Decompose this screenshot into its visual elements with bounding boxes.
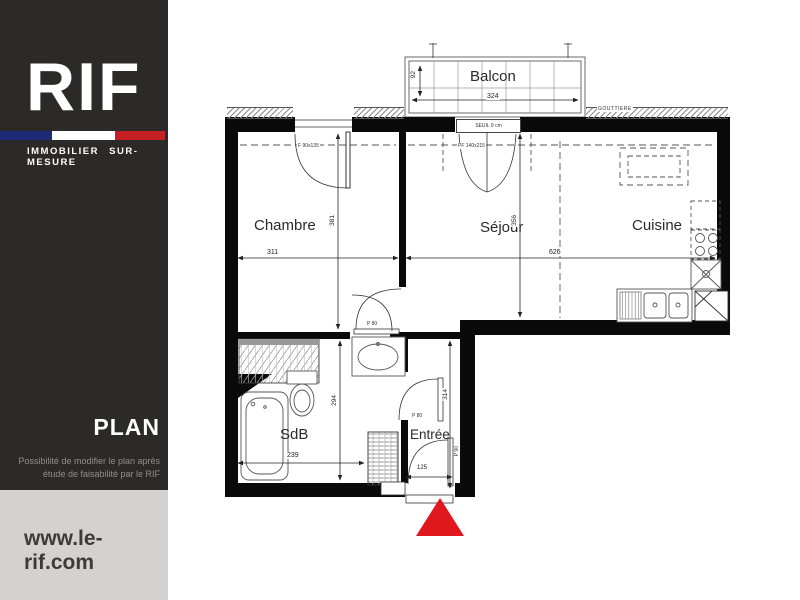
label-front-door: P 90 — [454, 446, 460, 456]
dim-balcon-width: 324 — [486, 93, 500, 100]
brand-logo: RIF — [26, 48, 156, 126]
label-sdb-door: P 80 — [366, 321, 378, 327]
label-gouttiere: GOUTTIERE — [597, 106, 633, 112]
dim-balcon-depth: 92 — [410, 70, 417, 79]
upper-cabinet — [620, 148, 688, 185]
fridge — [695, 291, 728, 321]
disclaimer-note: Possibilité de modifier le plan après ét… — [18, 455, 160, 481]
gutter-hatch-left — [227, 107, 293, 119]
dim-entree-height: 314 — [442, 388, 449, 401]
sejour-french-door — [459, 132, 516, 192]
furniture — [239, 234, 728, 486]
section-title: PLAN — [93, 414, 160, 441]
page: Balcon Chambre Séjour Cuisine SdB Entrée… — [0, 0, 800, 600]
flag-blue-segment — [0, 131, 52, 140]
label-chambre-window: F 90x135 — [297, 143, 320, 149]
disclaimer-line-1: Possibilité de modifier le plan après — [18, 456, 160, 466]
room-label-chambre: Chambre — [254, 217, 316, 234]
entrance-marker — [416, 498, 464, 536]
disclaimer-line-2: étude de faisabilité par le RIF — [43, 469, 160, 479]
room-label-entree: Entrée — [410, 427, 450, 442]
flag-bar — [0, 131, 165, 140]
dim-sdb-height: 294 — [331, 394, 338, 407]
brand-tagline: IMMOBILIER SUR-MESURE — [27, 146, 168, 168]
flag-white-segment — [52, 131, 115, 140]
dim-sejour-height: 356 — [511, 214, 518, 227]
survey-ticks — [429, 43, 572, 58]
dim-entree-width: 125 — [416, 465, 428, 471]
label-entree-door: P 80 — [411, 413, 423, 419]
cooktop — [696, 234, 718, 256]
dim-chambre-height: 381 — [329, 214, 336, 227]
worktop-unit — [691, 260, 721, 289]
kitchen-sink — [617, 289, 692, 322]
gutter-hatch-middle — [354, 107, 404, 119]
chambre-window — [295, 120, 352, 188]
label-sejour-door: PF 140x215 — [457, 143, 486, 149]
dim-chambre-width: 311 — [266, 249, 279, 256]
water-heater — [368, 432, 398, 485]
threshold — [406, 495, 453, 503]
label-seuil: SEUIL 9 cm — [456, 119, 521, 133]
dim-sejour-width: 626 — [548, 249, 562, 256]
flag-red-segment — [115, 131, 165, 140]
website-link[interactable]: www.le-rif.com — [24, 527, 168, 575]
sidebar: RIF IMMOBILIER SUR-MESURE PLAN Possibili… — [0, 0, 168, 600]
washbasin — [352, 337, 405, 376]
room-label-balcon: Balcon — [470, 68, 516, 85]
room-label-sdb: SdB — [280, 426, 308, 443]
toilet — [287, 371, 317, 416]
dim-sdb-width: 239 — [286, 452, 300, 459]
room-label-cuisine: Cuisine — [632, 217, 682, 234]
